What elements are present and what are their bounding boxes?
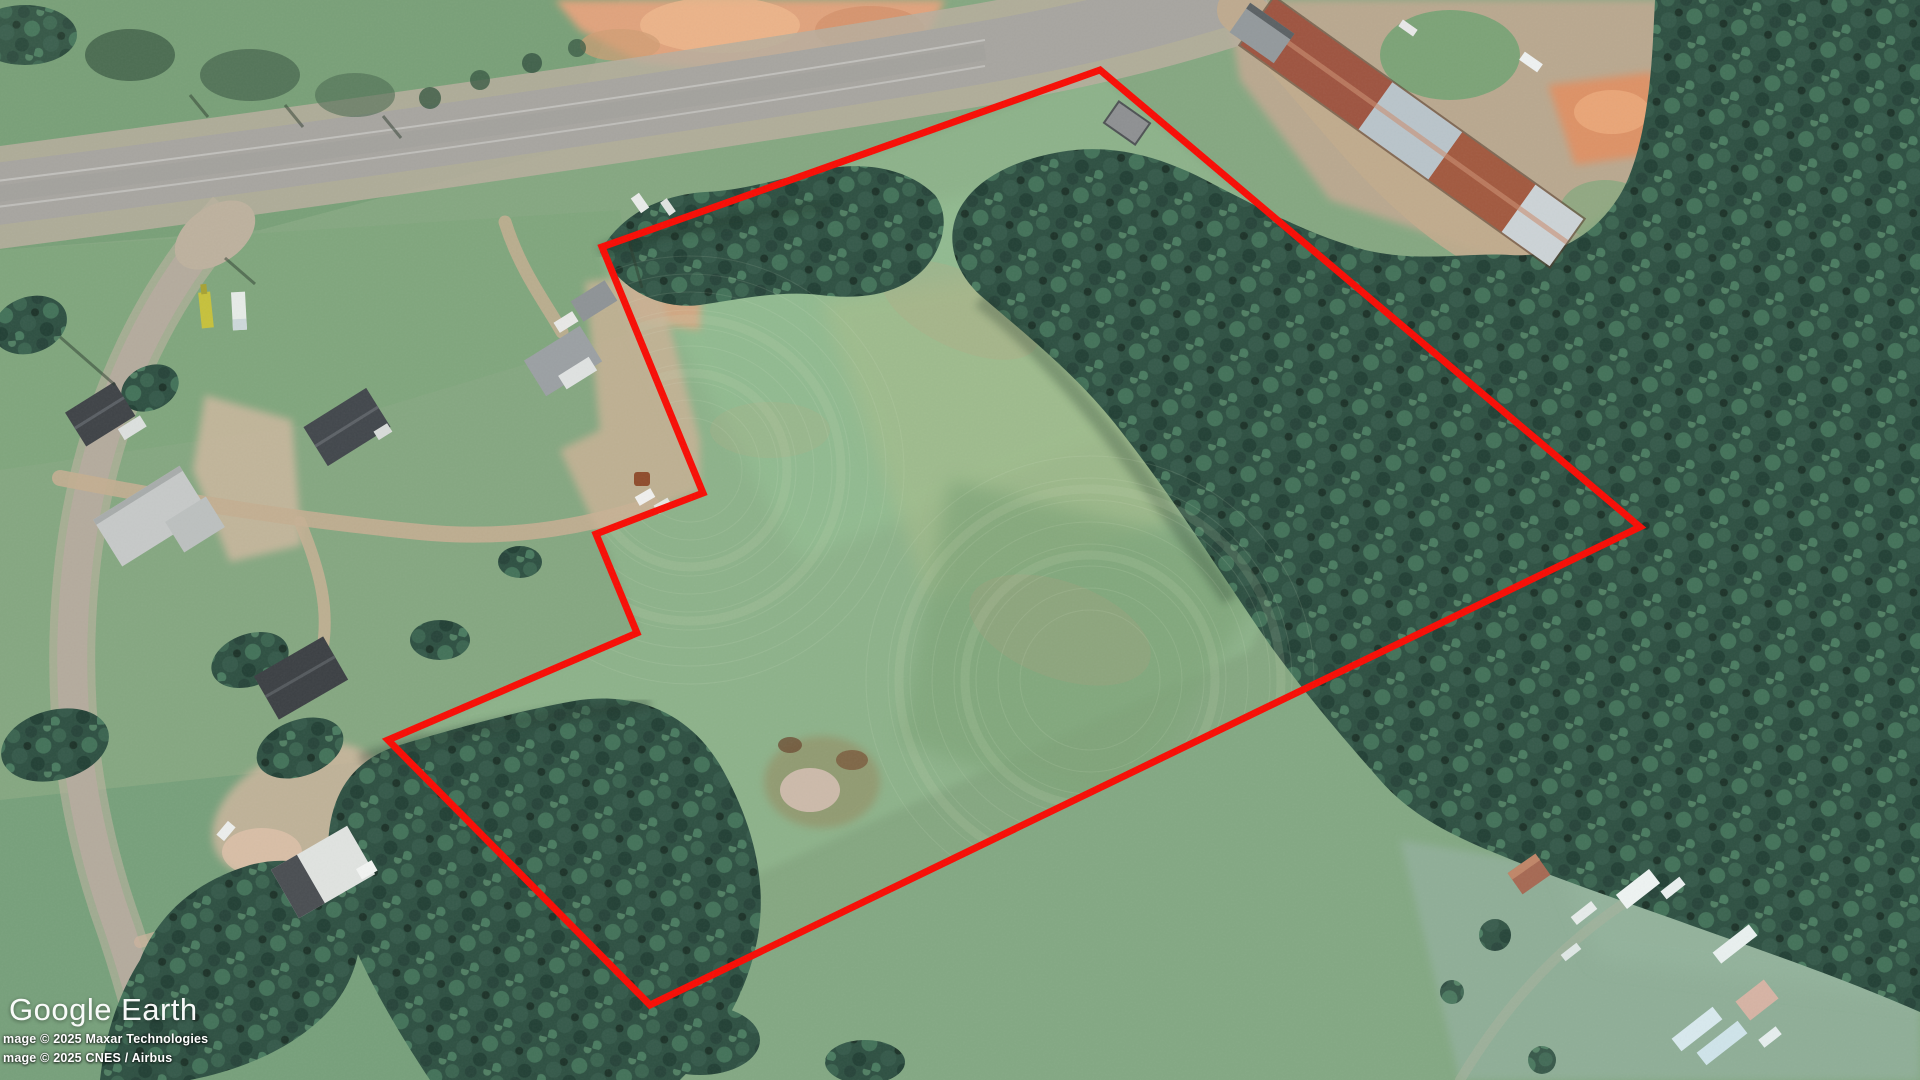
google-earth-logo: Google Earth [9,992,198,1028]
satellite-map-canvas[interactable] [0,0,1920,1080]
imagery-attribution: mage © 2025 Maxar Technologies mage © 20… [3,1030,208,1068]
image-grain-overlay [0,0,1920,1080]
google-earth-window: Google Earth mage © 2025 Maxar Technolog… [0,0,1920,1080]
attribution-line-2: mage © 2025 CNES / Airbus [3,1049,208,1068]
attribution-line-1: mage © 2025 Maxar Technologies [3,1030,208,1049]
